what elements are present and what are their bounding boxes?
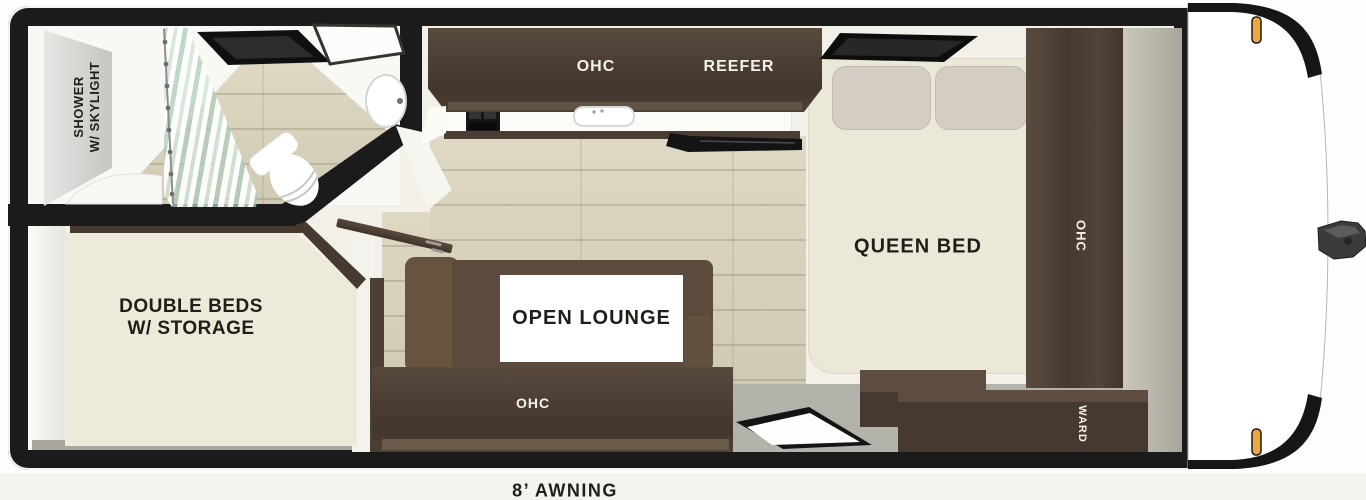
- front-cap-body: [1188, 4, 1328, 468]
- front-cap: [0, 0, 1366, 500]
- marker-light-top: [1252, 17, 1261, 43]
- marker-light-bottom: [1252, 429, 1261, 455]
- awning-label: 8’ AWNING: [512, 481, 618, 500]
- hitch-knob: [1344, 237, 1352, 245]
- floorplan-canvas: OHC REEFER OHC WARD OPEN LOUNGE OHC: [0, 0, 1366, 500]
